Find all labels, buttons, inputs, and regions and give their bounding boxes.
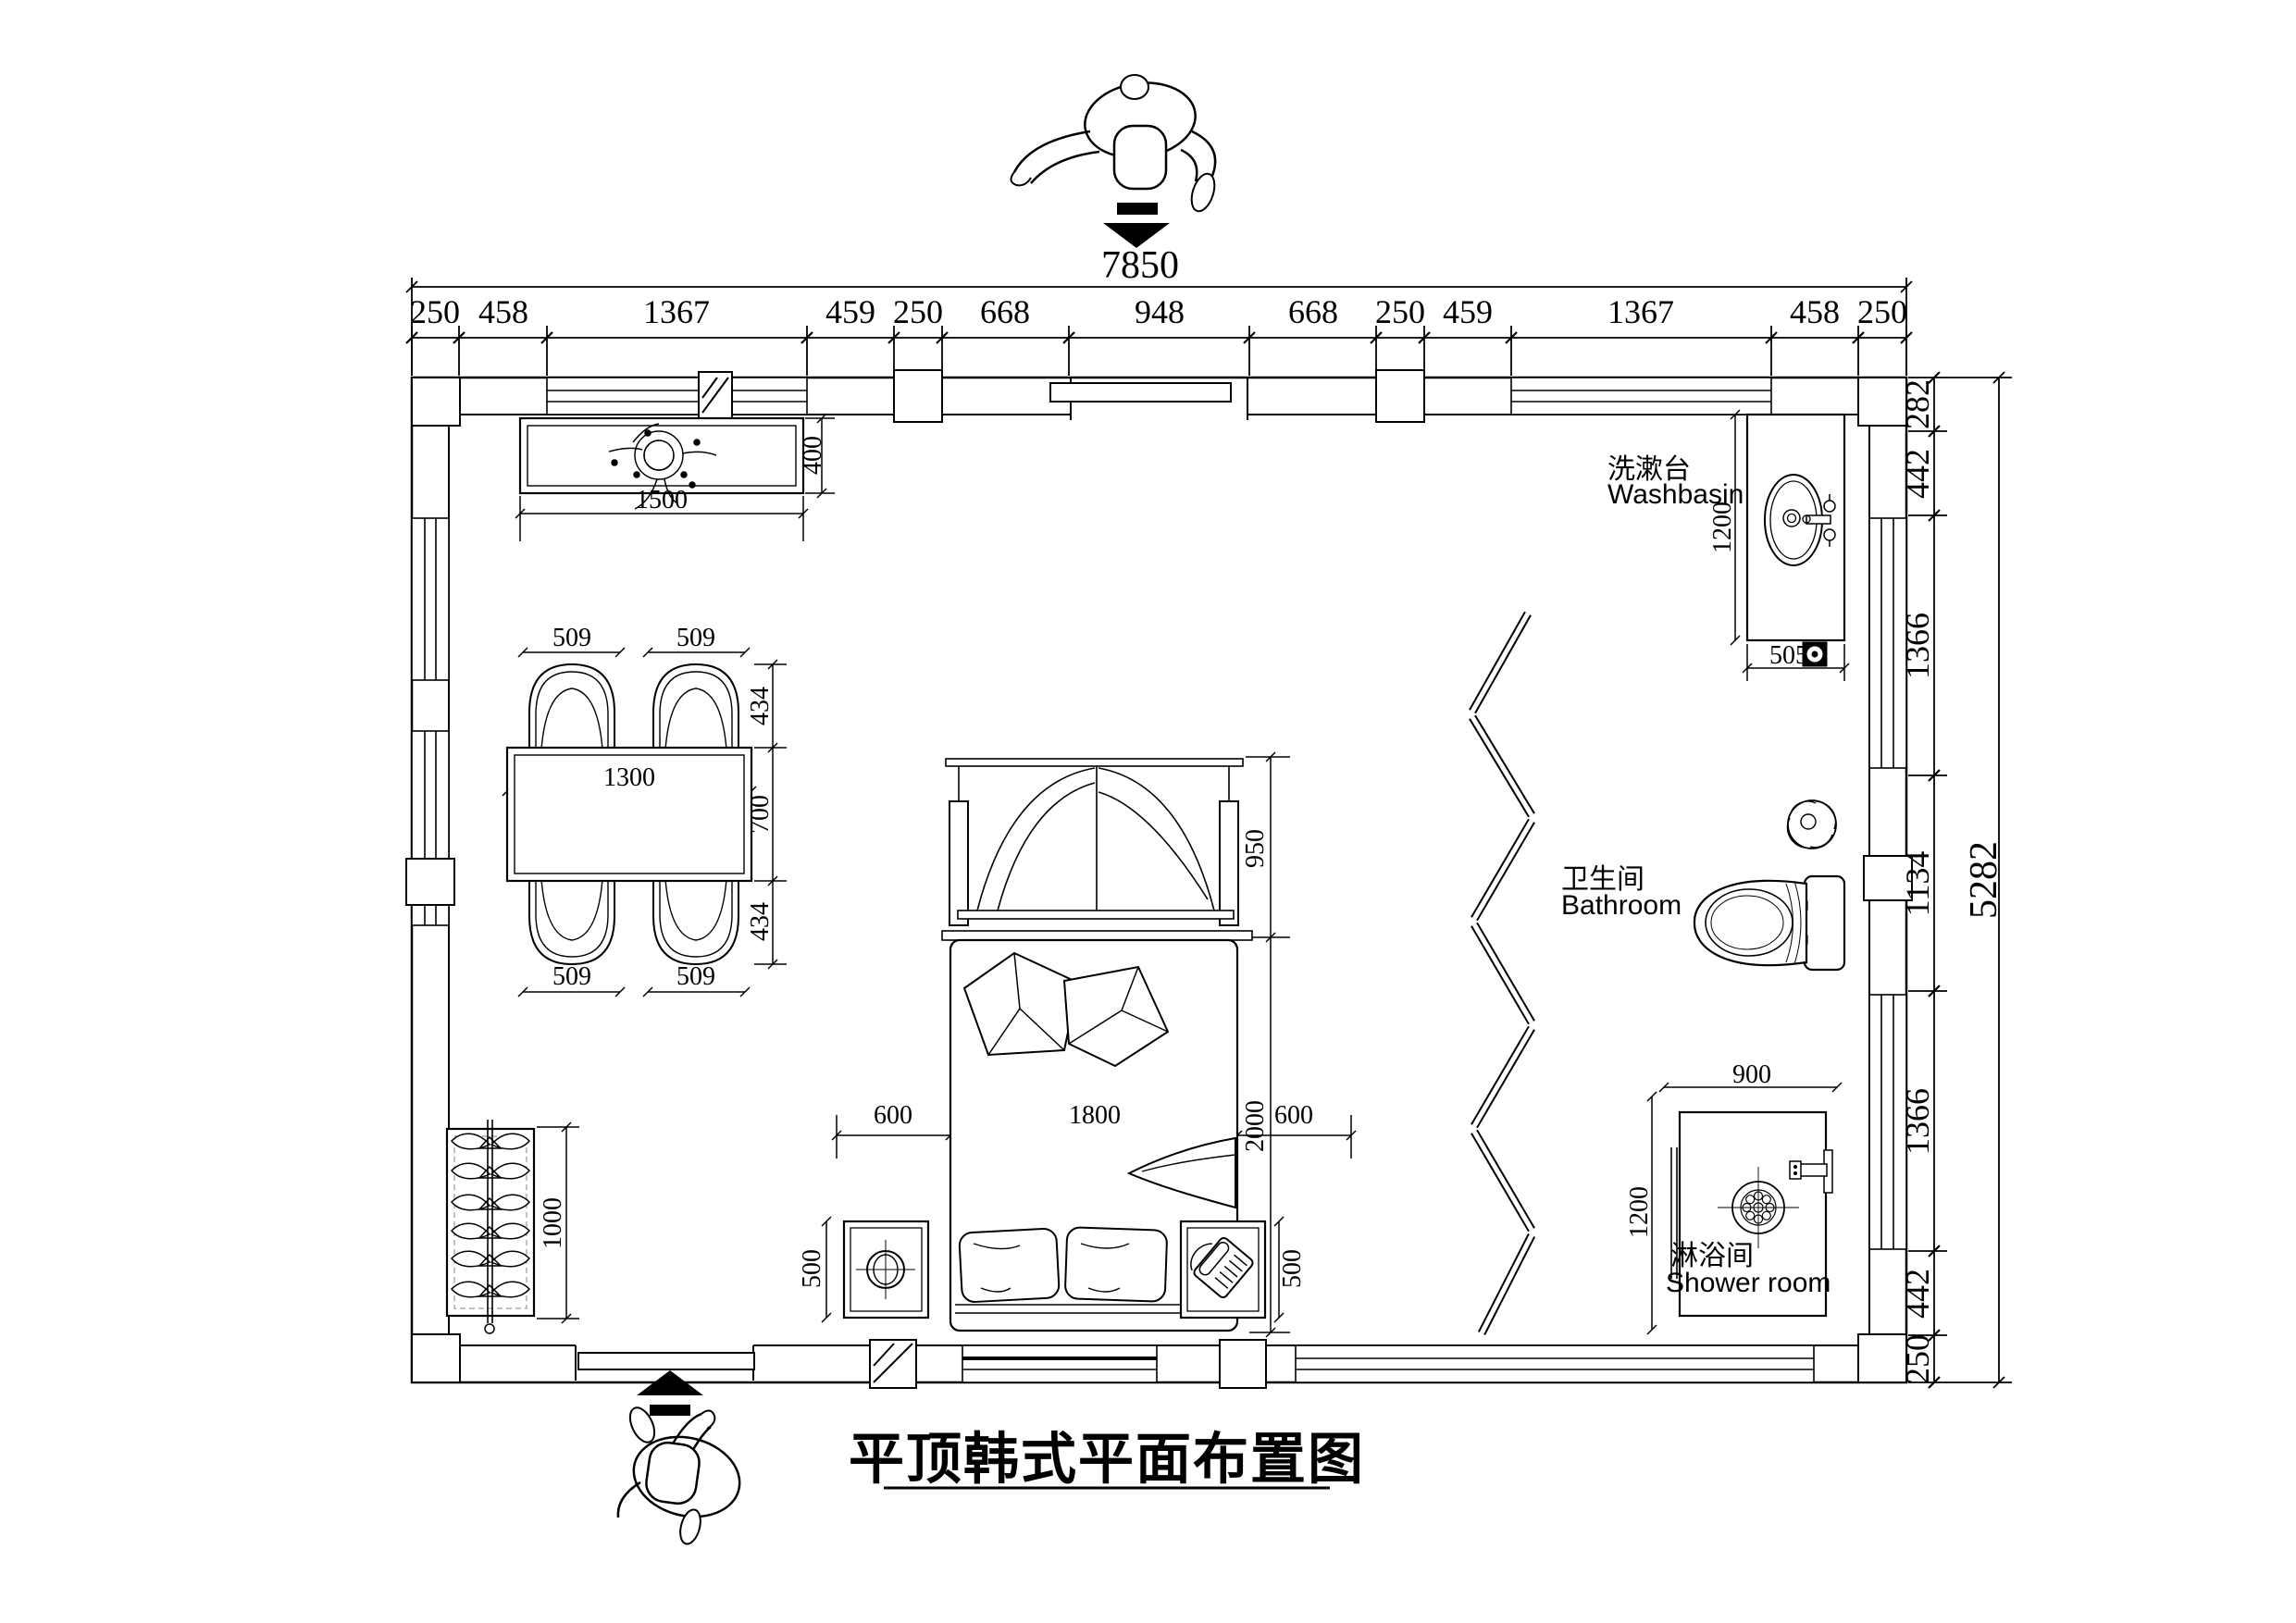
dim-top-8: 250 <box>1375 292 1425 331</box>
dim-bed-canopy: 950 <box>1241 829 1271 868</box>
dim-chair-br: 509 <box>676 962 715 992</box>
dim-top-7: 668 <box>1288 292 1338 331</box>
dim-top-11: 458 <box>1790 292 1840 331</box>
dim-right-4: 1366 <box>1898 1088 1937 1155</box>
dim-top-4: 250 <box>893 292 943 331</box>
washbasin-label-en: Washbasin <box>1607 479 1744 511</box>
dim-table-depth: 700 <box>746 795 776 834</box>
dim-right-1: 442 <box>1898 449 1937 499</box>
dim-right-6: 250 <box>1898 1334 1937 1384</box>
dim-nightstand-right: 500 <box>1278 1249 1308 1288</box>
dim-tv-depth: 400 <box>799 436 828 475</box>
nightstand-right <box>1181 1221 1265 1318</box>
dim-top-5: 668 <box>980 292 1030 331</box>
dim-top-0: 250 <box>410 292 460 331</box>
dim-bed-side-right: 600 <box>1274 1101 1313 1131</box>
floor-plan-canvas: 7850 250 458 1367 459 250 668 948 668 25… <box>0 0 2296 1623</box>
top-sliding-door-leaf <box>1050 383 1231 402</box>
dim-chair-tl: 509 <box>552 624 591 653</box>
dim-nightstand-left: 500 <box>798 1249 827 1288</box>
dim-chair-bl: 509 <box>552 962 591 992</box>
dim-chair-depth-top: 434 <box>746 687 776 725</box>
dim-top-1: 458 <box>478 292 528 331</box>
dim-shower-width: 900 <box>1732 1060 1771 1090</box>
dim-shower-depth: 1200 <box>1625 1186 1655 1238</box>
dim-table-width: 1300 <box>603 763 655 793</box>
dim-washbasin-width: 505 <box>1769 641 1808 671</box>
nightstand-left <box>844 1221 928 1318</box>
drawing-title: 平顶韩式平面布置图 <box>849 1415 1365 1495</box>
dim-right-0: 282 <box>1898 379 1937 429</box>
dim-chair-depth-bottom: 434 <box>746 902 776 941</box>
toilet <box>1694 876 1844 970</box>
dim-right-total: 5282 <box>1962 841 2006 919</box>
dim-right-5: 442 <box>1898 1269 1937 1319</box>
entry-arrow-top <box>1103 203 1170 248</box>
dim-bed-length: 2000 <box>1241 1100 1271 1152</box>
wardrobe-rack <box>447 1120 534 1333</box>
dim-top-9: 459 <box>1443 292 1493 331</box>
dim-wardrobe-length: 1000 <box>539 1197 568 1249</box>
dim-chair-tr: 509 <box>676 624 715 653</box>
dim-bed-side-left: 600 <box>874 1101 912 1131</box>
dim-top-10: 1367 <box>1607 292 1674 331</box>
bathroom-label-en: Bathroom <box>1561 890 1682 922</box>
dim-right-2: 1366 <box>1898 613 1937 679</box>
dim-tv-width: 1500 <box>636 486 688 515</box>
dim-top-total: 7850 <box>1101 243 1179 288</box>
dim-top-6: 948 <box>1135 292 1185 331</box>
person-bottom <box>618 1404 749 1546</box>
dim-top-12: 250 <box>1857 292 1907 331</box>
dim-right-3: 1134 <box>1898 851 1937 917</box>
bottom-sliding-door-leaf <box>578 1353 754 1369</box>
shower-label-en: Shower room <box>1666 1268 1831 1299</box>
dim-top-2: 1367 <box>643 292 710 331</box>
person-top <box>1011 75 1219 214</box>
dim-bed-width: 1800 <box>1069 1101 1121 1131</box>
washbasin-counter <box>1747 415 1844 666</box>
dim-top-3: 459 <box>825 292 875 331</box>
